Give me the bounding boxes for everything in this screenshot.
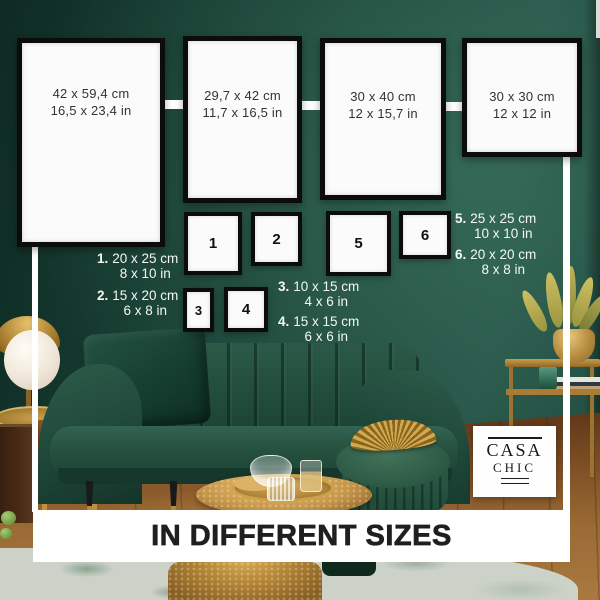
green-apple xyxy=(1,511,16,525)
frame-size-cm: 30 x 30 cm xyxy=(467,88,577,105)
legend-number: 4. xyxy=(278,314,289,344)
frame-29x42: 29,7 x 42 cm 11,7 x 16,5 in xyxy=(183,36,302,203)
frame-number-2: 2 xyxy=(251,212,302,266)
frame-42x59: 42 x 59,4 cm 16,5 x 23,4 in xyxy=(17,38,165,247)
legend-in: 6 x 6 in xyxy=(305,329,349,344)
frame-number-4: 4 xyxy=(224,287,268,332)
ribbed-glass xyxy=(267,477,295,501)
console-shelf xyxy=(506,389,600,395)
legend-item-1: 1. 20 x 25 cm 8 x 10 in xyxy=(97,251,178,281)
legend-number: 6. xyxy=(455,247,466,277)
logo-rule xyxy=(488,437,542,439)
frame-number-label: 2 xyxy=(272,231,280,248)
legend-number: 2. xyxy=(97,288,108,318)
wall-edge-highlight xyxy=(596,0,600,38)
green-apple xyxy=(0,528,12,539)
frame-size-in: 12 x 12 in xyxy=(467,105,577,122)
legend-cm: 20 x 25 cm xyxy=(112,251,178,266)
frame-30x30: 30 x 30 cm 12 x 12 in xyxy=(462,38,582,157)
coffee-table-base xyxy=(168,562,322,600)
tall-glass xyxy=(300,460,322,492)
connector-line-vertical xyxy=(563,156,570,512)
legend-number: 3. xyxy=(278,279,289,309)
frame-number-6: 6 xyxy=(399,211,451,259)
frame-number-1: 1 xyxy=(184,212,242,275)
connector-line xyxy=(163,100,184,109)
product-image: CASA CHIC 42 x 59,4 cm 16,5 x 23,4 in 29… xyxy=(0,0,600,600)
legend-item-4: 4. 15 x 15 cm 6 x 6 in xyxy=(278,314,359,344)
connector-line xyxy=(301,101,321,110)
frame-number-label: 3 xyxy=(195,303,202,318)
brand-name-line2: CHIC xyxy=(493,461,536,474)
frame-size-in: 12 x 15,7 in xyxy=(325,105,441,122)
legend-item-6: 6. 20 x 20 cm 8 x 8 in xyxy=(455,247,536,277)
legend-in: 8 x 10 in xyxy=(120,266,171,281)
legend-cm: 25 x 25 cm xyxy=(470,211,536,226)
frame-number-label: 5 xyxy=(354,235,362,252)
frame-size-cm: 42 x 59,4 cm xyxy=(22,85,160,102)
green-glass-cup xyxy=(539,367,557,389)
frame-number-label: 6 xyxy=(421,227,429,244)
legend-cm: 10 x 15 cm xyxy=(293,279,359,294)
legend-cm: 15 x 15 cm xyxy=(293,314,359,329)
legend-in: 8 x 8 in xyxy=(482,262,526,277)
brand-logo: CASA CHIC xyxy=(473,426,556,497)
connector-line xyxy=(445,102,463,111)
frame-number-label: 1 xyxy=(209,235,217,252)
frame-size-in: 16,5 x 23,4 in xyxy=(22,102,160,119)
legend-cm: 15 x 20 cm xyxy=(112,288,178,303)
frame-30x40: 30 x 40 cm 12 x 15,7 in xyxy=(320,38,446,200)
connector-line-vertical xyxy=(32,246,38,512)
gold-console-top xyxy=(505,359,600,367)
legend-number: 1. xyxy=(97,251,108,281)
legend-in: 6 x 8 in xyxy=(124,303,168,318)
legend-item-3: 3. 10 x 15 cm 4 x 6 in xyxy=(278,279,359,309)
legend-item-2: 2. 15 x 20 cm 6 x 8 in xyxy=(97,288,178,318)
legend-cm: 20 x 20 cm xyxy=(470,247,536,262)
frame-size-in: 11,7 x 16,5 in xyxy=(188,104,297,121)
brand-name-line1: CASA xyxy=(486,441,542,460)
banner-title: IN DIFFERENT SIZES xyxy=(151,520,452,553)
banner: IN DIFFERENT SIZES xyxy=(33,510,570,562)
frame-number-5: 5 xyxy=(326,211,391,276)
frame-number-label: 4 xyxy=(242,301,250,318)
legend-number: 5. xyxy=(455,211,466,241)
frame-number-3: 3 xyxy=(183,288,214,332)
frame-size-cm: 29,7 x 42 cm xyxy=(188,87,297,104)
logo-double-rule xyxy=(501,478,529,484)
ottoman-shadow xyxy=(322,562,376,576)
legend-in: 10 x 10 in xyxy=(474,226,533,241)
legend-in: 4 x 6 in xyxy=(305,294,349,309)
legend-item-5: 5. 25 x 25 cm 10 x 10 in xyxy=(455,211,536,241)
frame-size-cm: 30 x 40 cm xyxy=(325,88,441,105)
